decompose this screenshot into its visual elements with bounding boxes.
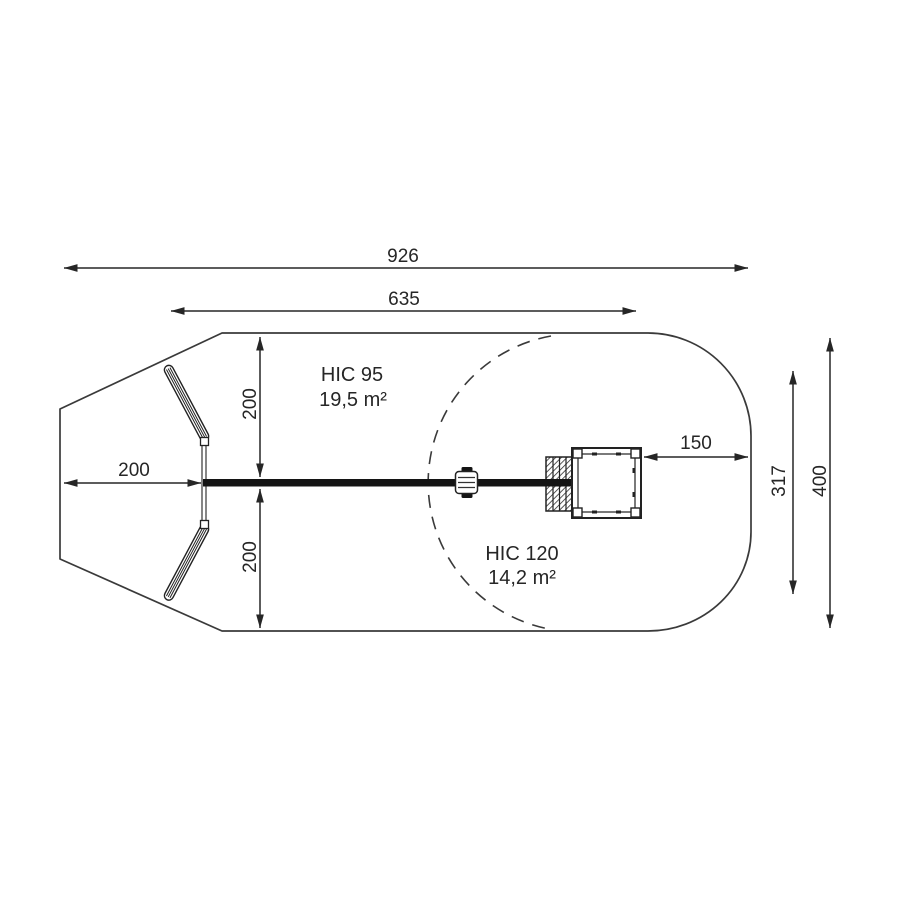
hic120-zone-label: HIC 120 <box>485 543 558 565</box>
swing-joint-upper <box>201 438 209 446</box>
dim-label-swing-frame-width: 635 <box>388 289 420 310</box>
platform-post <box>573 449 582 458</box>
hic95-zone-area: 19,5 m² <box>319 389 387 411</box>
dim-label-total-height: 400 <box>810 465 831 497</box>
platform-tower <box>572 448 641 518</box>
dimension-labels: 926 635 200 200 200 150 317 400 <box>118 246 831 573</box>
swing-leg-upper <box>163 364 210 442</box>
dim-label-left-clearance: 200 <box>118 460 150 481</box>
swing-leg-lower <box>163 523 210 601</box>
hic120-zone-area: 14,2 m² <box>488 567 556 589</box>
platform-post <box>573 508 582 517</box>
dim-label-upper-clearance: 200 <box>240 388 261 420</box>
swing-beam <box>203 479 573 487</box>
beam-connector <box>456 467 478 498</box>
swing-joint-lower <box>201 521 209 529</box>
dim-label-hic120-height: 317 <box>769 465 790 497</box>
zone-labels: HIC 95 19,5 m² HIC 120 14,2 m² <box>319 364 559 589</box>
dim-label-lower-clearance: 200 <box>240 541 261 573</box>
dim-label-right-clearance: 150 <box>680 433 712 454</box>
dim-label-total-width: 926 <box>387 246 419 267</box>
safety-zone-diagram: 926 635 200 200 200 150 317 400 HIC 95 1… <box>0 0 900 900</box>
platform-post <box>631 449 640 458</box>
hic95-zone-label: HIC 95 <box>321 364 383 386</box>
platform-post <box>631 508 640 517</box>
